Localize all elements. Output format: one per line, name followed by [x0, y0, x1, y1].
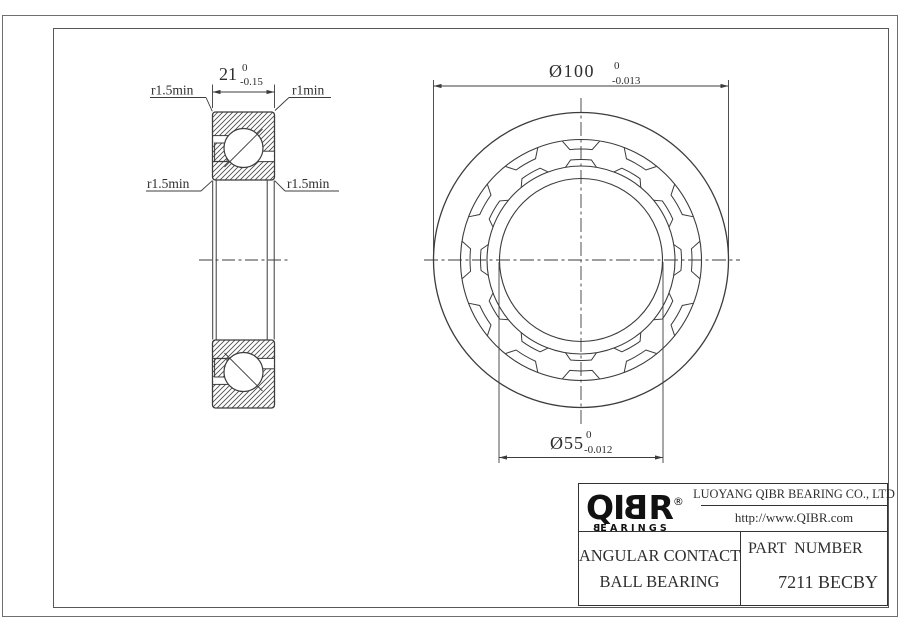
cage-pocket: [624, 148, 657, 170]
logo-text-flipped-b: B: [624, 491, 648, 524]
dimension-arrow-icon: [213, 90, 221, 94]
product-description: ANGULAR CONTACT BALL BEARING: [579, 532, 741, 606]
dimension-arrow-icon: [721, 84, 729, 88]
cage-pocket: [671, 184, 693, 217]
section-top: [213, 112, 275, 180]
cage-pocket: [624, 350, 657, 372]
title-block-detail-row: ANGULAR CONTACT BALL BEARING PART NUMBER…: [579, 532, 887, 606]
logo-text: QI: [586, 488, 624, 527]
part-number-cell: PART NUMBER 7211 BECBY: [741, 532, 887, 606]
product-line2: BALL BEARING: [600, 569, 720, 595]
company-info: LUOYANG QIBR BEARING CO., LTD http://www…: [701, 484, 887, 531]
dim-od-upper: 0: [614, 60, 620, 72]
dim-width-lower: -0.15: [240, 76, 263, 88]
dimension-arrow-icon: [655, 455, 663, 459]
product-line1: ANGULAR CONTACT: [579, 543, 740, 569]
sheet: { "drawing": { "dimensions": { "width": …: [0, 0, 900, 636]
dimension-arrow-icon: [434, 84, 442, 88]
company-name: LUOYANG QIBR BEARING CO., LTD: [701, 484, 887, 506]
dim-width-value: 21: [219, 64, 237, 84]
logo-text: R: [649, 488, 673, 527]
dimension-width: 21 0 -0.15: [213, 62, 275, 108]
radius-label-bottom-left: r1.5min: [147, 176, 190, 191]
dim-width-upper: 0: [242, 62, 248, 74]
logo-wordmark: QIBR®: [586, 485, 701, 524]
front-view: Ø100 0 -0.013 Ø55 0 -0.012: [424, 60, 740, 463]
registered-mark-icon: ®: [673, 495, 684, 508]
dim-od-value: Ø100: [549, 61, 595, 81]
dim-bore-value: Ø55: [550, 433, 584, 453]
cage-pocket: [671, 303, 693, 336]
company-logo: QIBR® BEARINGS: [586, 485, 701, 534]
section-bottom: [213, 340, 275, 408]
radius-label-top-right: r1min: [292, 83, 324, 98]
radius-label-top-left: r1.5min: [151, 83, 194, 98]
title-block-header-row: QIBR® BEARINGS LUOYANG QIBR BEARING CO.,…: [579, 484, 887, 532]
dimension-arrow-icon: [267, 90, 275, 94]
cage-pocket: [505, 148, 538, 170]
dim-bore-lower: -0.012: [584, 444, 612, 456]
ring-faces: [213, 181, 275, 340]
part-number-label: PART NUMBER: [748, 540, 863, 558]
dimension-arrow-icon: [499, 455, 507, 459]
radius-label-bottom-right: r1.5min: [287, 176, 330, 191]
logo-subtitle-flipped-b: B: [593, 523, 600, 534]
title-block: QIBR® BEARINGS LUOYANG QIBR BEARING CO.,…: [578, 483, 888, 606]
cage-pocket: [505, 350, 538, 372]
cage-pocket: [469, 184, 491, 217]
cage-pocket: [469, 303, 491, 336]
cross-section-view: 21 0 -0.15 r1.5min r1min r1.5min r1.5min: [146, 62, 339, 408]
company-website: http://www.QIBR.com: [701, 506, 887, 530]
part-number-value: 7211 BECBY: [778, 572, 878, 593]
dim-bore-upper: 0: [586, 429, 592, 441]
dim-od-lower: -0.013: [612, 75, 641, 87]
